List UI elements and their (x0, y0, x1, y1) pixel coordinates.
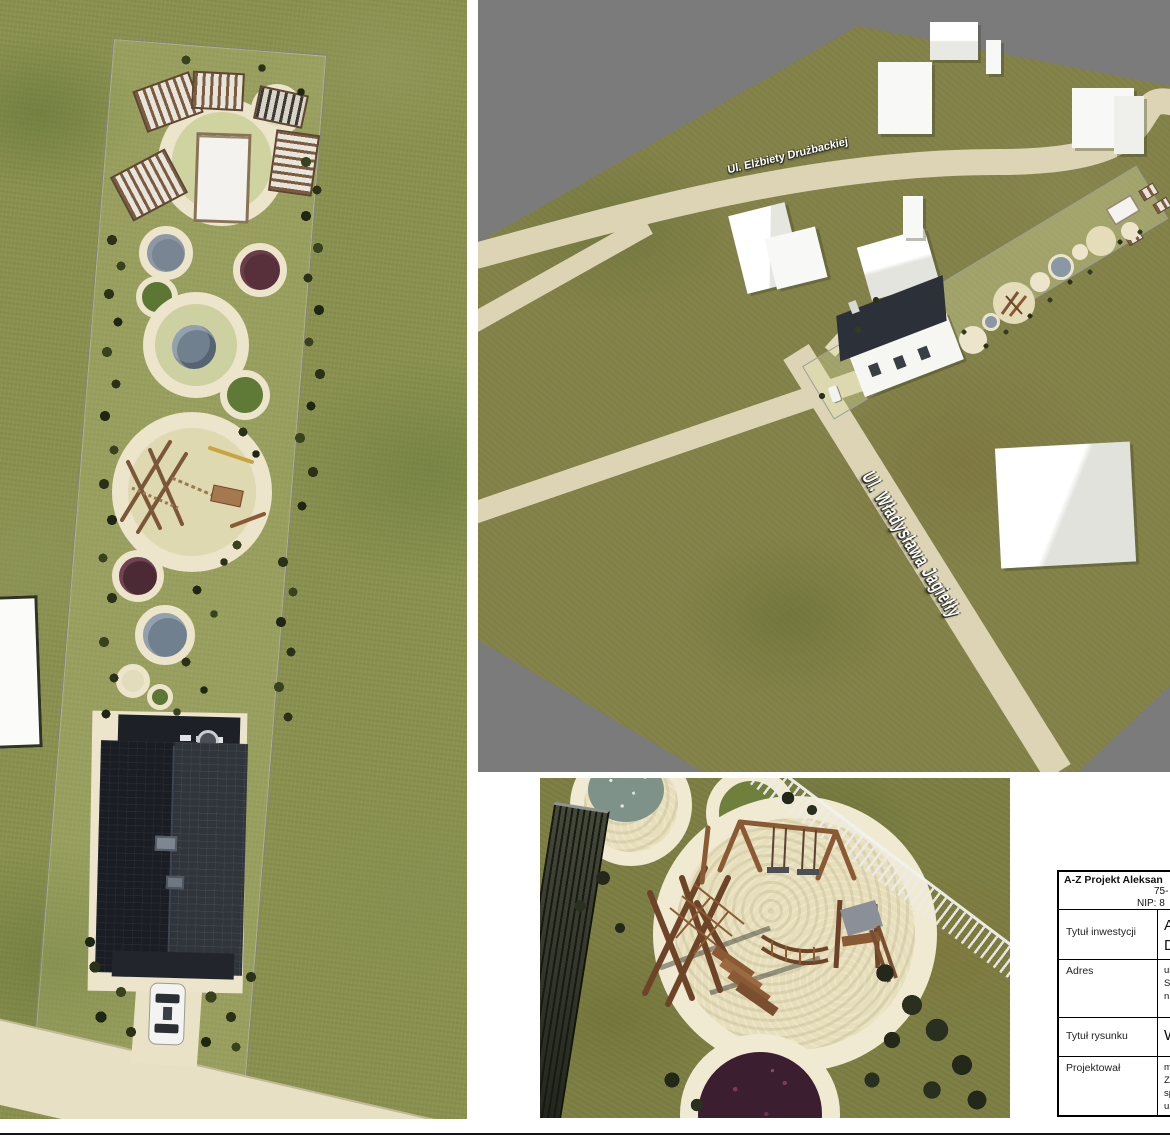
climber-beams (645, 868, 742, 1004)
row-label: Adres (1059, 960, 1158, 1017)
house-porch (112, 950, 235, 979)
skylight (155, 836, 178, 852)
garden-circle-small (147, 684, 173, 710)
row-label: Projektował (1059, 1057, 1158, 1115)
pergola-box (268, 129, 320, 197)
swings (772, 827, 816, 871)
strip-circle-blue (1048, 254, 1074, 280)
neighbour-building (0, 595, 43, 749)
strip-circle (1030, 272, 1050, 292)
car-rear-window (154, 1024, 178, 1034)
row-label: Tytuł inwestycji (1059, 910, 1158, 959)
row-label: Tytuł rysunku (1059, 1018, 1158, 1056)
title-block-row: Adres ul S n (1059, 960, 1170, 1018)
context-building (903, 196, 923, 238)
plan-view (0, 0, 467, 1119)
garden-circle-blue-plants (135, 605, 195, 665)
sheet-bottom-rule (0, 1133, 1170, 1135)
row-value: W (1158, 1018, 1170, 1056)
title-block-row: Tytuł inwestycji A D (1059, 910, 1170, 960)
car-windshield (155, 994, 179, 1004)
company-name: A-Z Projekt Aleksan (1059, 874, 1170, 886)
garden-circle-maroon-plants (233, 243, 287, 297)
title-block-row: Projektował m Z sp u (1059, 1057, 1170, 1115)
playground-view (540, 778, 1010, 1118)
company-nip: NIP: 8 (1059, 898, 1170, 910)
strip-circle (1072, 244, 1088, 260)
strip-circle (1086, 226, 1116, 256)
tower (836, 900, 896, 982)
play-equipment (590, 808, 900, 1038)
swing-seat (797, 869, 819, 875)
context-building (878, 62, 932, 134)
garden-circle-blue-plants (139, 226, 193, 280)
terrace-panel (180, 735, 191, 741)
pergola-table (193, 132, 251, 224)
play-structure-topview (112, 428, 277, 553)
garden-circle-maroon-plants (112, 550, 164, 602)
car-roof (163, 1007, 172, 1020)
garden-circle-small (116, 664, 150, 698)
title-block-header: A-Z Projekt Aleksan 75- NIP: 8 (1059, 872, 1170, 910)
swing-seat (767, 867, 789, 873)
context-building (995, 442, 1136, 569)
skylight (166, 876, 184, 890)
title-block-row: Tytuł rysunku W (1059, 1018, 1170, 1057)
context-building (986, 40, 1001, 74)
row-value: A D (1158, 910, 1170, 959)
strip-circle (959, 326, 987, 354)
strip-circle (1121, 222, 1139, 240)
drawing-sheet: Ul. Elżbiety Drużbackiej Ul. Władysława … (0, 0, 1170, 1142)
context-building (1114, 96, 1144, 154)
strip-play-structure (998, 288, 1030, 318)
aerial-view: Ul. Elżbiety Drużbackiej Ul. Władysława … (478, 0, 1170, 772)
garden-circle-lawn (220, 370, 270, 420)
row-value: ul S n (1158, 960, 1170, 1017)
context-building (930, 22, 978, 60)
wooden-steps (711, 946, 778, 1017)
pergola-box (191, 71, 245, 112)
row-value: m Z sp u (1158, 1057, 1170, 1115)
title-block: A-Z Projekt Aleksan 75- NIP: 8 Tytuł inw… (1057, 870, 1170, 1117)
car (148, 982, 186, 1045)
blue-plant-cluster (172, 325, 216, 369)
company-postcode: 75- (1059, 886, 1170, 898)
